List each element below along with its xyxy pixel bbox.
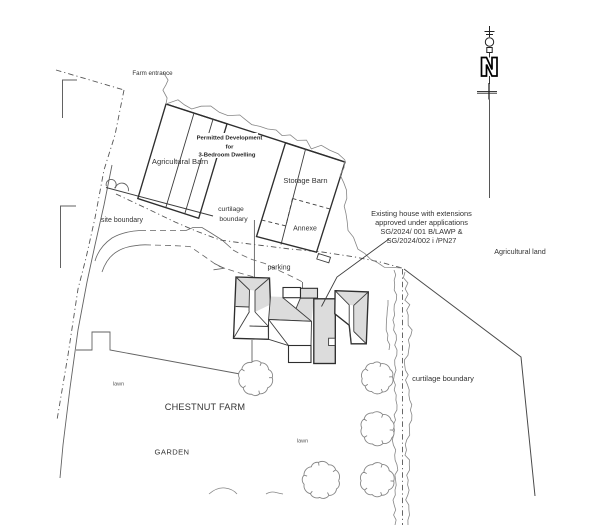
svg-text:curtilage boundary: curtilage boundary [412,374,474,383]
svg-text:Agricultural Barn: Agricultural Barn [152,157,208,166]
svg-text:CHESTNUT FARM: CHESTNUT FARM [165,402,246,412]
svg-text:boundary: boundary [219,216,248,223]
svg-text:Agricultural land: Agricultural land [494,247,546,256]
svg-text:parking: parking [268,265,291,272]
svg-text:lawn: lawn [113,382,124,388]
svg-text:Storage Barn: Storage Barn [283,176,327,185]
svg-text:GARDEN: GARDEN [155,448,190,457]
svg-text:SG/2024/ 001 B/LAWP &: SG/2024/ 001 B/LAWP & [380,227,462,236]
svg-text:Permitted Development: Permitted Development [197,136,263,142]
svg-text:curtilage: curtilage [218,206,244,213]
svg-text:lawn: lawn [297,439,308,445]
svg-text:Annexe: Annexe [293,226,317,233]
svg-text:approved under applications: approved under applications [375,218,468,227]
svg-text:Existing house with extensions: Existing house with extensions [371,209,472,218]
svg-text:site boundary: site boundary [101,217,144,224]
svg-text:for: for [226,145,235,151]
svg-text:Farm entrance: Farm entrance [132,70,173,77]
svg-text:SG/2024/002 i /PN27: SG/2024/002 i /PN27 [387,236,457,245]
